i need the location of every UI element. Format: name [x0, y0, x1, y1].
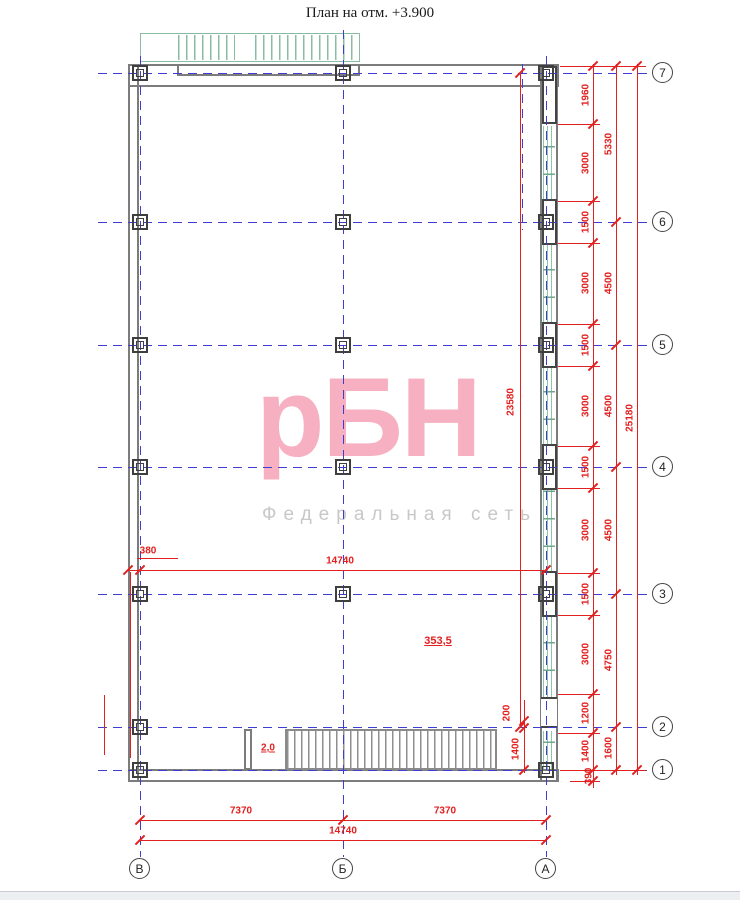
dim-label: 1500: [581, 456, 592, 478]
dim-line-bottom-total: [140, 840, 546, 841]
column-marker: [538, 214, 554, 230]
dim-label-interior-width: 14740: [326, 556, 354, 567]
dim-label: 1400: [581, 740, 592, 762]
dim-label: 4500: [604, 272, 615, 294]
dim-line-interior-width: [128, 570, 547, 571]
dim-label: 4500: [604, 395, 615, 417]
dim-label: 7370: [230, 806, 252, 817]
dim-label: 7370: [434, 806, 456, 817]
dim-extension: [558, 488, 600, 489]
dim-label-bottom-total: 14740: [329, 826, 357, 837]
column-marker: [132, 586, 148, 602]
column-marker: [538, 337, 554, 353]
column-marker: [335, 65, 351, 81]
dim-label: 1500: [581, 211, 592, 233]
grid-bubble-1: 1: [652, 759, 673, 780]
dim-label: 3000: [581, 272, 592, 294]
column-marker: [132, 337, 148, 353]
dim-extension: [558, 324, 600, 325]
column-marker: [335, 337, 351, 353]
dim-label-wall-offset: 380: [140, 546, 157, 557]
dim-line-right-total: [637, 64, 638, 775]
dim-extension: [130, 572, 131, 758]
column-marker: [538, 65, 554, 81]
dim-label: 1200: [581, 702, 592, 724]
grid-bubble-6: 6: [652, 211, 673, 232]
column-marker: [132, 214, 148, 230]
grid-bubble-b: Б: [332, 858, 353, 879]
grid-line-row-4: [98, 467, 651, 468]
dim-extension: [558, 694, 600, 695]
dim-line-dock: [524, 700, 525, 773]
glazing-strip: [543, 615, 555, 697]
grid-bubble-a: А: [535, 858, 556, 879]
grid-line-row-3: [98, 594, 651, 595]
dim-extension: [558, 573, 600, 574]
dim-label: 4500: [604, 519, 615, 541]
glazing-strip: [543, 366, 555, 446]
column-marker: [335, 214, 351, 230]
grid-line-col-b: [343, 30, 344, 857]
dim-extension: [558, 446, 600, 447]
column-marker: [538, 762, 554, 778]
dock-hatch: [285, 729, 497, 770]
dim-label-right-inner: 23580: [506, 388, 517, 416]
dim-label: 3000: [581, 643, 592, 665]
dim-extension: [558, 615, 600, 616]
watermark-subtitle: Федеральная сеть: [262, 504, 537, 526]
column-marker: [132, 65, 148, 81]
dim-label: 3000: [581, 395, 592, 417]
grid-line-aux: [522, 64, 523, 230]
grid-line-row-6: [98, 222, 651, 223]
dim-label: 3000: [581, 519, 592, 541]
dim-extension: [558, 733, 600, 734]
dim-leader: [137, 558, 178, 559]
column-marker: [132, 762, 148, 778]
drawing-title: План на отм. +3.900: [0, 5, 740, 22]
dock-slope-label: 2,0: [261, 743, 275, 754]
dim-extension: [558, 201, 600, 202]
grid-line-col-v: [140, 56, 141, 857]
canopy-hatch-left: [178, 35, 235, 60]
dim-label: 1500: [581, 334, 592, 356]
glazing-strip: [543, 488, 555, 573]
grid-bubble-v: В: [129, 858, 150, 879]
column-marker: [335, 586, 351, 602]
page-bottom-bar: [0, 891, 740, 900]
grid-bubble-5: 5: [652, 334, 673, 355]
grid-bubble-4: 4: [652, 456, 673, 477]
glazing-strip: [543, 126, 555, 201]
dim-label: 1600: [604, 737, 615, 759]
grid-bubble-2: 2: [652, 716, 673, 737]
grid-line-row-5: [98, 345, 651, 346]
grid-line-row-2: [98, 727, 651, 728]
dock-stub: [244, 729, 252, 770]
dim-line-right-inner: [520, 73, 521, 727]
dim-extension: [558, 243, 600, 244]
dim-label-right-total: 25180: [625, 404, 636, 432]
floor-plan-canvas: План на отм. +3.900 рБН Федеральная сеть: [0, 0, 740, 900]
dim-label-dock-width: 200: [502, 705, 513, 722]
column-marker: [538, 586, 554, 602]
watermark-logo: рБН: [256, 362, 480, 474]
room-area-label: 353,5: [424, 635, 452, 647]
grid-bubble-7: 7: [652, 62, 673, 83]
dim-label: 390: [584, 768, 595, 785]
dim-line-right-tier1: [593, 64, 594, 788]
grid-bubble-3: 3: [652, 583, 673, 604]
dim-extension: [558, 124, 600, 125]
grid-line-row-7: [98, 73, 651, 74]
dim-extension: [558, 366, 600, 367]
column-marker: [335, 459, 351, 475]
dim-label-dock-height: 1400: [511, 738, 522, 760]
glazing-strip: [543, 243, 555, 324]
dim-label: 5330: [604, 133, 615, 155]
dim-extension: [560, 770, 646, 771]
column-marker: [538, 459, 554, 475]
grid-line-col-a: [546, 56, 547, 857]
dim-label: 3000: [581, 152, 592, 174]
column-marker: [132, 459, 148, 475]
dim-label: 1960: [581, 84, 592, 106]
dim-extension: [560, 66, 646, 67]
dim-label: 1500: [581, 583, 592, 605]
dim-extension: [104, 695, 105, 755]
dim-label: 4750: [604, 649, 615, 671]
dim-line-right-tier2: [616, 64, 617, 775]
wall-opening: [541, 697, 557, 728]
column-marker: [132, 719, 148, 735]
